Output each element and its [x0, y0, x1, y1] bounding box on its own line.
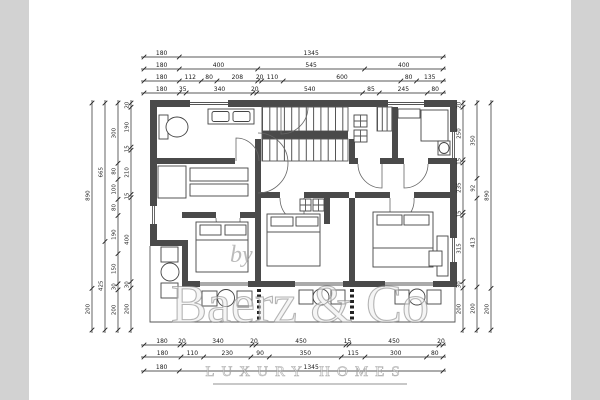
- dim-label: 100: [112, 184, 118, 195]
- dim-label: 340: [212, 338, 224, 345]
- dim-label: 200: [485, 303, 491, 314]
- watermark-brand: Baerz & Co: [171, 274, 429, 334]
- dim-chain-top-1: 1801345: [141, 50, 446, 59]
- dim-chain-left-4: 20190152101540030200: [125, 100, 134, 333]
- closet-left: [158, 166, 186, 198]
- dim-chain-bottom-2: 1801102309035011530080: [141, 350, 446, 359]
- dim-label: 340: [214, 86, 226, 93]
- window-top-1: [190, 100, 228, 107]
- dim-label: 110: [187, 350, 199, 357]
- dim-label: 245: [398, 86, 410, 93]
- right-gray-bar: [571, 0, 600, 400]
- dim-label: 85: [367, 86, 375, 93]
- dim-label: 30: [112, 283, 118, 290]
- dim-label: 20: [178, 338, 186, 345]
- dim-chain-right-1: 20250152351531530200: [457, 100, 466, 333]
- dim-label: 15: [125, 145, 131, 152]
- stair-side-flight: [377, 107, 392, 131]
- wall-bl-bedroom-north-1: [182, 212, 216, 218]
- shelf-topright: [398, 109, 420, 118]
- dim-label: 400: [213, 62, 225, 69]
- watermark-tagline: LUXURY HOMES: [205, 364, 406, 380]
- dim-label: 315: [457, 243, 463, 254]
- window-top-2: [388, 100, 424, 107]
- wall-bath-south: [150, 158, 235, 164]
- dim-chain-right-2: 35092413200: [471, 100, 480, 333]
- dim-label: 30: [125, 281, 131, 288]
- dim-label: 92: [471, 185, 477, 192]
- dim-label: 112: [185, 74, 197, 81]
- dim-label: 80: [431, 350, 439, 357]
- dim-label: 210: [125, 167, 131, 178]
- wall-mid-bedroom-stub: [324, 198, 330, 224]
- sink-topright: [438, 141, 450, 155]
- bed-bottom-right: [373, 212, 433, 267]
- wardrobe-topright: [421, 110, 448, 141]
- dim-label: 1345: [304, 50, 319, 57]
- dim-label: 665: [99, 166, 105, 177]
- dim-label: 190: [125, 121, 131, 132]
- dim-label: 180: [156, 62, 168, 69]
- dim-label: 413: [471, 237, 477, 248]
- dim-label: 350: [300, 350, 312, 357]
- dim-label: 80: [205, 74, 213, 81]
- dim-chain-left-2: 665425: [99, 100, 108, 333]
- dim-label: 890: [485, 190, 491, 201]
- dim-label: 400: [398, 62, 410, 69]
- dim-label: 200: [125, 303, 131, 314]
- wall-bl-bedroom-north-2: [240, 212, 255, 218]
- dim-label: 600: [336, 74, 348, 81]
- dim-label: 450: [388, 338, 400, 345]
- dim-label: 90: [256, 350, 264, 357]
- dim-label: 200: [471, 303, 477, 314]
- dim-label: 20: [457, 101, 463, 108]
- toilet-topleft: [159, 115, 188, 139]
- dim-label: 200: [112, 304, 118, 315]
- dim-label: 135: [424, 74, 436, 81]
- dim-chain-bottom-1: 18020340204501545020: [141, 338, 446, 347]
- dim-label: 15: [457, 157, 463, 164]
- shower-row-middle: [300, 199, 324, 211]
- wall-bedroom-divider-left: [255, 139, 261, 287]
- dim-label: 80: [431, 86, 439, 93]
- dim-label: 425: [99, 280, 105, 291]
- dim-label: 80: [112, 167, 118, 174]
- dim-label: 190: [112, 229, 118, 240]
- dim-label: 20: [251, 86, 259, 93]
- dim-label: 15: [125, 192, 131, 199]
- door-hall-arc-1: [258, 163, 288, 193]
- dim-chain-top-3: 180112802082011060080135: [141, 74, 446, 83]
- dim-label: 30: [457, 281, 463, 288]
- wall-tr-south-1: [349, 158, 358, 164]
- wall-corridor-south-3: [355, 192, 390, 198]
- dim-label: 110: [267, 74, 279, 81]
- door-room-topright: [404, 164, 428, 188]
- dim-label: 20: [256, 74, 264, 81]
- dim-label: 300: [390, 350, 402, 357]
- dim-label: 20: [437, 338, 445, 345]
- dim-label: 545: [305, 62, 317, 69]
- wall-left: [150, 100, 157, 246]
- wall-topright-divider: [392, 107, 398, 162]
- dim-label: 80: [112, 203, 118, 210]
- dim-label: 300: [112, 127, 118, 138]
- door-stair-hall: [281, 107, 308, 134]
- left-gray-bar: [0, 0, 29, 400]
- wardrobe-left-2: [190, 184, 248, 196]
- dim-label: 35: [179, 86, 187, 93]
- dim-label: 80: [405, 74, 413, 81]
- wall-tr-south-2: [380, 158, 404, 164]
- dim-label: 400: [125, 234, 131, 245]
- dim-label: 450: [295, 338, 307, 345]
- dim-label: 180: [156, 364, 168, 371]
- dim-label: 208: [232, 74, 244, 81]
- dim-label: 20: [125, 101, 131, 108]
- dim-chain-left-1: 890200: [86, 100, 95, 333]
- bed-bottom-middle: [267, 214, 320, 266]
- dim-label: 180: [156, 74, 168, 81]
- dim-label: 15: [457, 210, 463, 217]
- floor-plan-canvas: 1801345 180400545400 1801128020820110600…: [0, 0, 600, 400]
- watermark-by: by: [230, 242, 253, 268]
- dim-label: 350: [471, 135, 477, 146]
- dim-chain-top-2: 180400545400: [141, 62, 446, 71]
- dim-label: 180: [156, 338, 168, 345]
- dim-label: 230: [222, 350, 234, 357]
- wall-corridor-south-4: [414, 192, 450, 198]
- wall-tr-south-3: [428, 158, 450, 164]
- dim-label: 15: [344, 338, 352, 345]
- dim-label: 180: [157, 350, 169, 357]
- dim-label: 200: [457, 303, 463, 314]
- dim-label: 180: [156, 86, 168, 93]
- door-bath-topright: [358, 164, 382, 188]
- dim-label: 890: [86, 190, 92, 201]
- wall-corridor-south-2: [304, 192, 349, 198]
- dim-label: 180: [156, 50, 168, 57]
- dim-chain-top-4: 18035340205408524580: [141, 86, 446, 95]
- radiator-fixtures: [354, 115, 367, 142]
- dim-label: 20: [250, 338, 258, 345]
- dim-chain-left-3: 300801008019015030200: [112, 100, 121, 333]
- vanity-double-sink: [208, 109, 254, 124]
- wardrobe-left-1: [190, 168, 248, 181]
- dim-label: 235: [457, 182, 463, 193]
- floor-plan-page: 1801345 180400545400 1801128020820110600…: [0, 0, 600, 400]
- window-left: [150, 206, 157, 224]
- dim-chain-right-3: 890200: [485, 100, 494, 333]
- dim-label: 540: [304, 86, 316, 93]
- dim-label: 250: [457, 128, 463, 139]
- dim-label: 150: [112, 263, 118, 274]
- dim-label: 115: [347, 350, 359, 357]
- dim-label: 200: [86, 303, 92, 314]
